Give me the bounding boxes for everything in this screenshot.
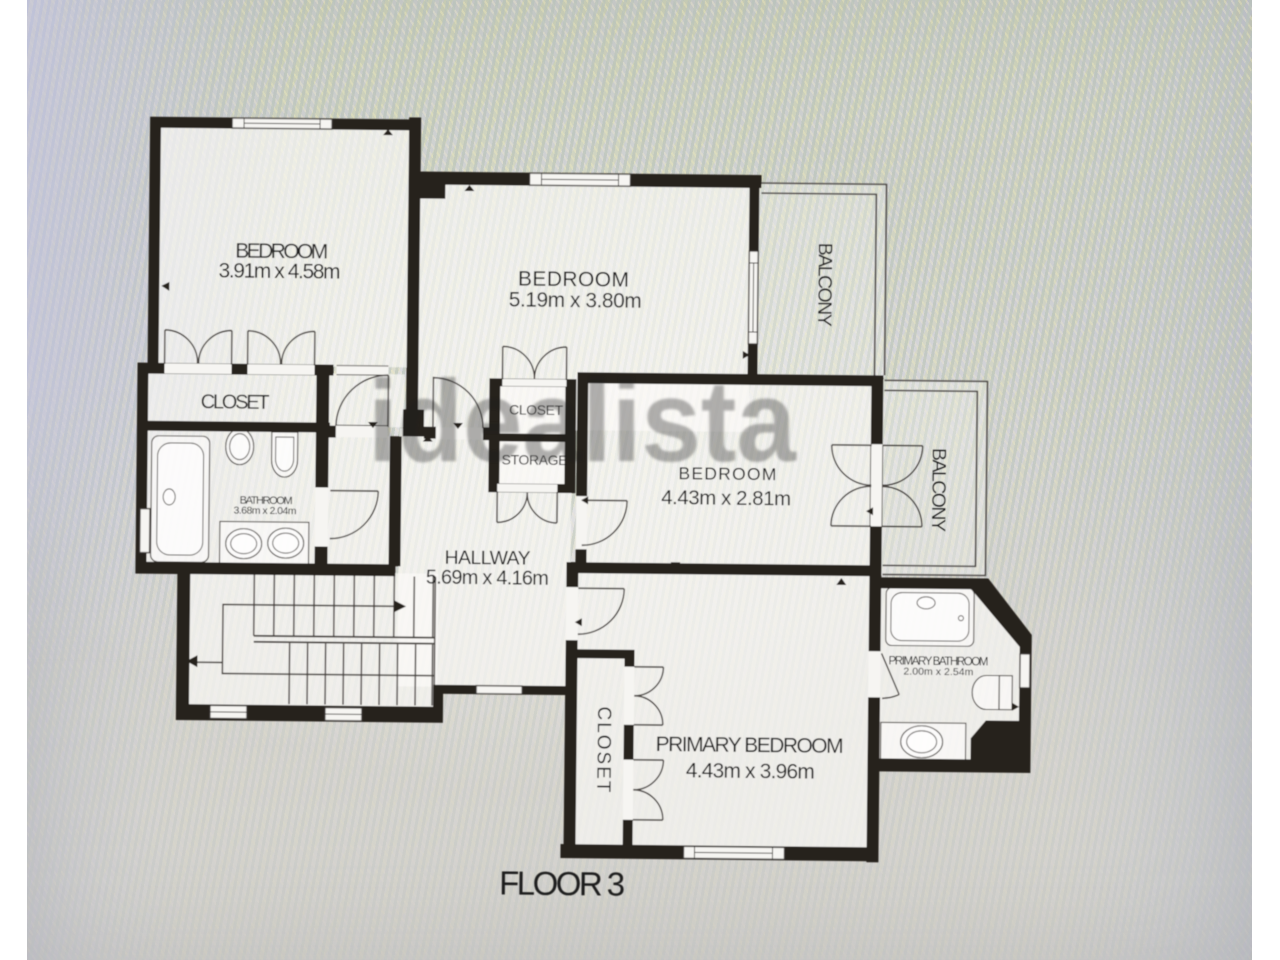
svg-text:BALCONY: BALCONY xyxy=(813,243,836,327)
svg-text:FLOOR 3: FLOOR 3 xyxy=(499,864,625,902)
svg-text:4.43m x 3.96m: 4.43m x 3.96m xyxy=(686,759,815,783)
svg-text:PRIMARY BEDROOM: PRIMARY BEDROOM xyxy=(655,733,843,758)
svg-text:4.43m x 2.81m: 4.43m x 2.81m xyxy=(661,486,791,510)
svg-text:3.91m x 4.58m: 3.91m x 4.58m xyxy=(218,259,340,283)
svg-text:idealista: idealista xyxy=(368,356,797,486)
svg-text:BALCONY: BALCONY xyxy=(927,448,950,532)
svg-text:5.69m x 4.16m: 5.69m x 4.16m xyxy=(426,567,549,590)
svg-text:CLOSET: CLOSET xyxy=(201,391,270,414)
svg-text:5.19m x 3.80m: 5.19m x 3.80m xyxy=(509,288,642,312)
svg-text:3.68m x 2.04m: 3.68m x 2.04m xyxy=(233,505,296,518)
svg-text:2.00m x 2.54m: 2.00m x 2.54m xyxy=(903,666,973,679)
